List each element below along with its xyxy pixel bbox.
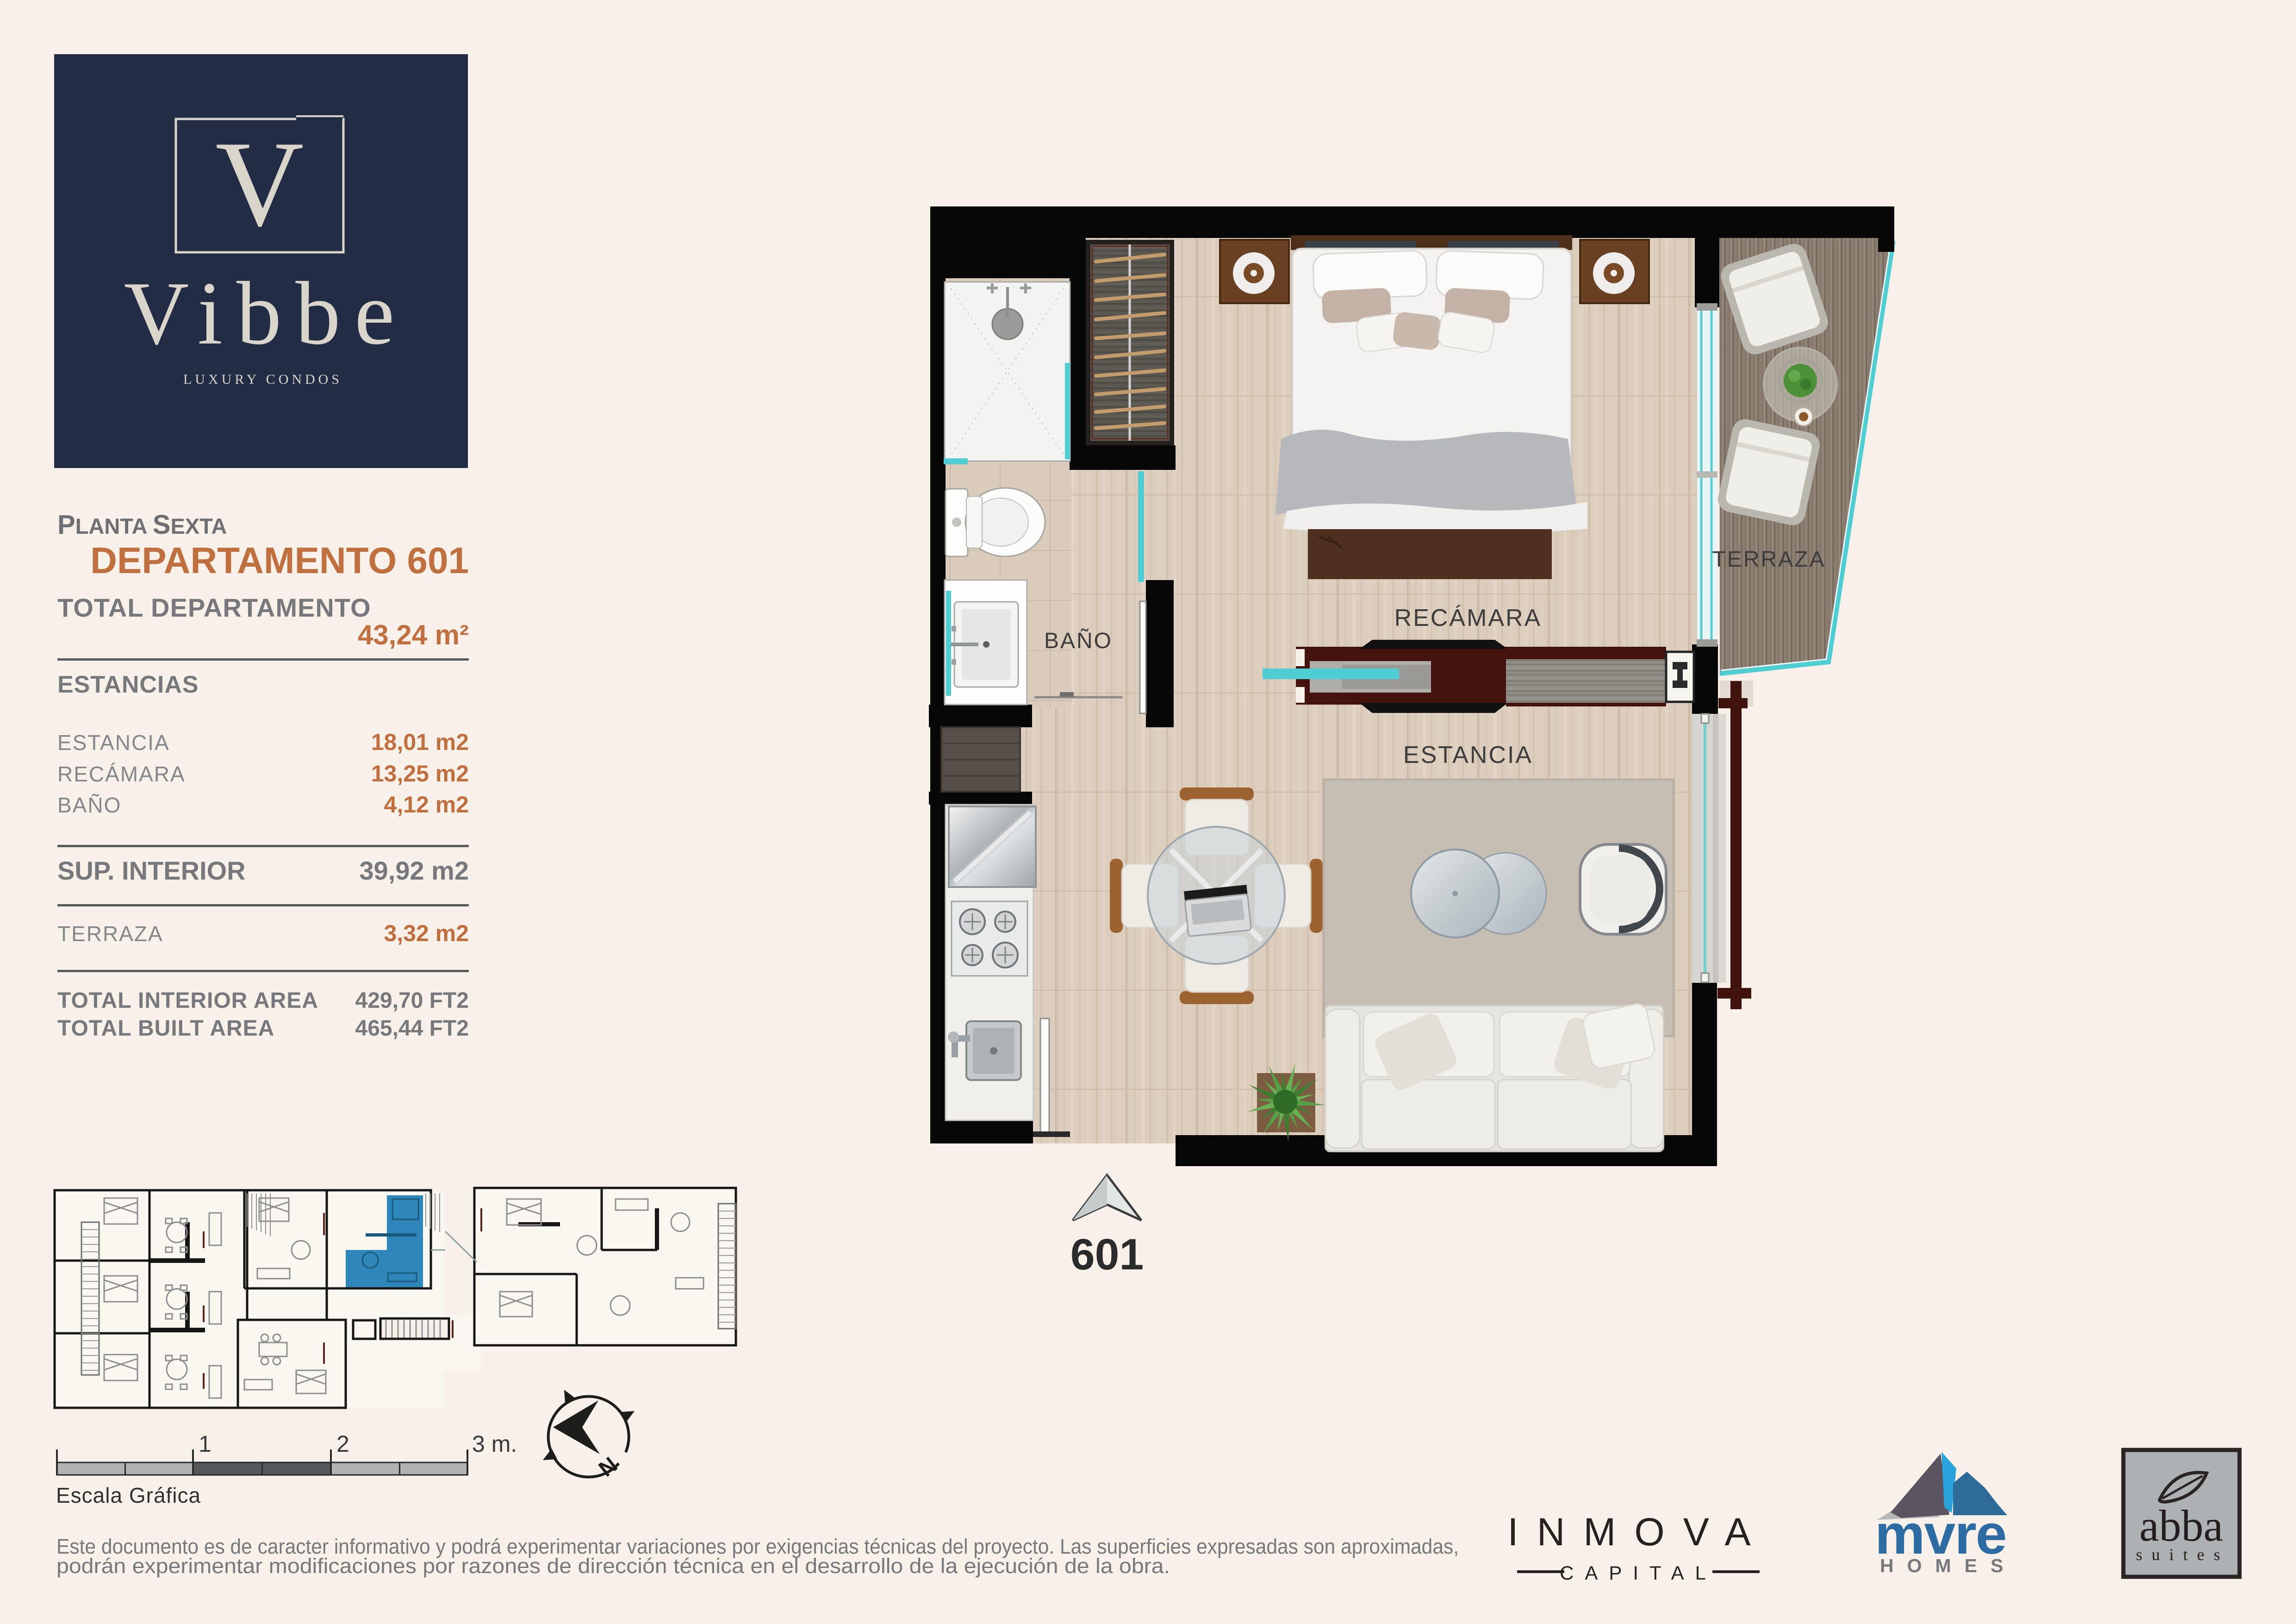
svg-text:HOMES: HOMES xyxy=(1880,1555,2016,1576)
svg-text:TERRAZA: TERRAZA xyxy=(57,922,163,946)
svg-text:BAÑO: BAÑO xyxy=(57,793,121,817)
svg-text:18,01 m2: 18,01 m2 xyxy=(371,729,469,755)
svg-text:BAÑO: BAÑO xyxy=(1044,628,1113,653)
svg-text:ESTANCIAS: ESTANCIAS xyxy=(57,671,199,698)
svg-text:suites: suites xyxy=(2136,1545,2229,1564)
svg-text:TOTAL INTERIOR AREA: TOTAL INTERIOR AREA xyxy=(57,988,318,1013)
svg-text:TERRAZA: TERRAZA xyxy=(1712,547,1825,572)
svg-text:1: 1 xyxy=(199,1431,212,1457)
svg-text:Escala Gráfica: Escala Gráfica xyxy=(56,1483,201,1507)
svg-text:RECÁMARA: RECÁMARA xyxy=(1394,605,1542,631)
svg-text:465,44 FT2: 465,44 FT2 xyxy=(355,1016,469,1041)
svg-text:SUP. INTERIOR: SUP. INTERIOR xyxy=(57,856,246,885)
svg-text:TOTAL DEPARTAMENTO: TOTAL DEPARTAMENTO xyxy=(57,593,371,622)
svg-text:DEPARTAMENTO 601: DEPARTAMENTO 601 xyxy=(90,540,469,581)
svg-text:INMOVA: INMOVA xyxy=(1507,1510,1769,1554)
svg-text:ESTANCIA: ESTANCIA xyxy=(1403,742,1533,768)
svg-text:V: V xyxy=(215,116,304,252)
svg-text:13,25 m2: 13,25 m2 xyxy=(371,761,469,787)
svg-text:ESTANCIA: ESTANCIA xyxy=(57,731,170,755)
svg-text:podrán experimentar modificaci: podrán experimentar modificaciones por r… xyxy=(56,1554,1170,1578)
svg-text:4,12 m2: 4,12 m2 xyxy=(384,792,469,818)
svg-text:Vibbe: Vibbe xyxy=(124,263,409,363)
svg-text:43,24 m²: 43,24 m² xyxy=(358,619,469,650)
svg-text:PLANTA SEXTA: PLANTA SEXTA xyxy=(57,510,227,540)
svg-text:abba: abba xyxy=(2139,1501,2223,1550)
svg-text:2: 2 xyxy=(336,1431,349,1457)
svg-text:3 m.: 3 m. xyxy=(472,1431,517,1457)
svg-text:601: 601 xyxy=(1070,1230,1144,1279)
svg-text:3,32 m2: 3,32 m2 xyxy=(384,920,469,946)
svg-text:LUXURY CONDOS: LUXURY CONDOS xyxy=(183,372,342,387)
svg-text:RECÁMARA: RECÁMARA xyxy=(57,762,186,786)
svg-text:CAPITAL: CAPITAL xyxy=(1560,1562,1717,1584)
svg-text:39,92 m2: 39,92 m2 xyxy=(359,856,469,885)
svg-text:429,70 FT2: 429,70 FT2 xyxy=(355,988,469,1013)
svg-text:TOTAL BUILT AREA: TOTAL BUILT AREA xyxy=(57,1016,274,1041)
